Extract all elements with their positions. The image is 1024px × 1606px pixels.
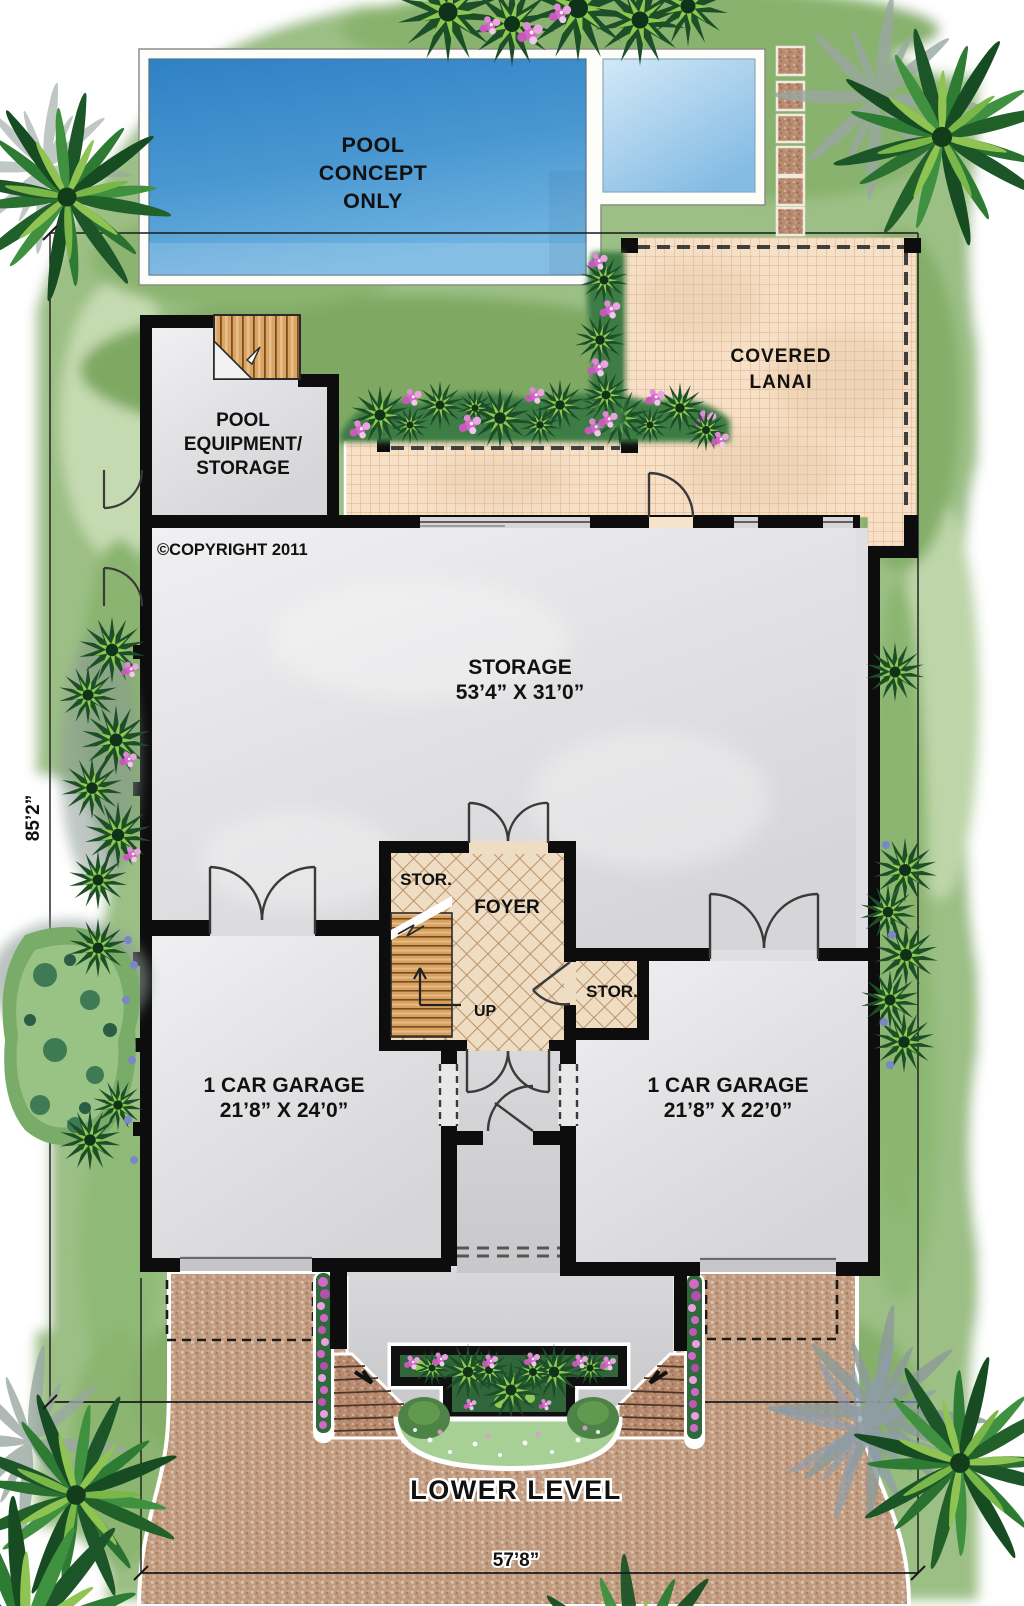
svg-text:LANAI: LANAI (749, 372, 812, 393)
svg-text:STORAGE: STORAGE (468, 656, 571, 679)
svg-text:COVERED: COVERED (731, 346, 832, 367)
svg-text:POOL: POOL (342, 133, 405, 157)
svg-text:1 CAR GARAGE: 1 CAR GARAGE (647, 1074, 808, 1097)
svg-text:POOL: POOL (216, 410, 270, 431)
svg-text:ONLY: ONLY (343, 189, 403, 213)
svg-text:85’2”: 85’2” (23, 795, 44, 841)
svg-text:UP: UP (474, 1003, 497, 1020)
svg-text:57’8”: 57’8” (493, 1550, 539, 1571)
svg-text:21’8” X 24’0”: 21’8” X 24’0” (220, 1099, 348, 1122)
svg-text:©COPYRIGHT 2011: ©COPYRIGHT 2011 (157, 541, 308, 559)
svg-text:FOYER: FOYER (474, 897, 540, 918)
svg-text:CONCEPT: CONCEPT (319, 161, 428, 185)
svg-text:STOR.: STOR. (400, 870, 452, 889)
svg-text:EQUIPMENT/: EQUIPMENT/ (184, 434, 303, 455)
svg-text:53’4” X 31’0”: 53’4” X 31’0” (456, 681, 584, 704)
svg-text:1 CAR GARAGE: 1 CAR GARAGE (203, 1074, 364, 1097)
svg-text:STOR.: STOR. (586, 982, 638, 1001)
svg-text:LOWER LEVEL: LOWER LEVEL (410, 1475, 622, 1505)
svg-text:STORAGE: STORAGE (196, 458, 290, 479)
svg-text:21’8” X 22’0”: 21’8” X 22’0” (664, 1099, 792, 1122)
